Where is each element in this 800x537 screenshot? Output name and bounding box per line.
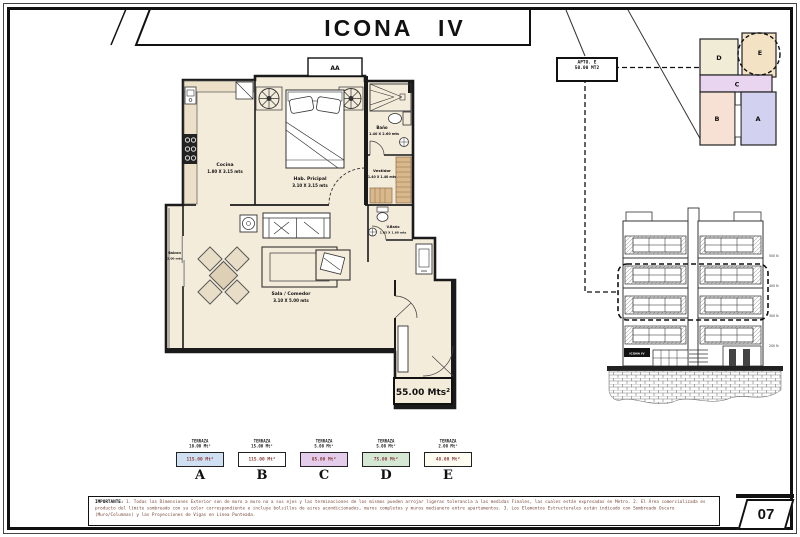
- legend-area-value-d: 75.00 Mt²: [363, 453, 409, 466]
- legend-terraza-value-c: 5.00 Mt²: [300, 444, 348, 447]
- ac-unit: AA: [308, 58, 362, 76]
- note-heading: IMPORTANTE:: [95, 500, 123, 505]
- level-labels: 500 N 400 N 300 N 200 N: [769, 254, 779, 348]
- unit-legend: TERRAZA 10.00 Mt² 115.00 Mt² A TERRAZA 1…: [176, 439, 472, 483]
- legend-item-d: TERRAZA 5.00 Mt² 75.00 Mt² D: [362, 439, 410, 483]
- legend-area-box-c: 85.00 Mt²: [300, 452, 348, 467]
- plan-sheet: ICONA IV APTO. E 50.00 MT2 D E C B A: [0, 0, 800, 537]
- keyplan-letter-b: B: [715, 115, 720, 123]
- important-note-box: IMPORTANTE: 1. Todas las Dimensiones Ext…: [88, 496, 720, 526]
- legend-letter-a: A: [176, 469, 224, 483]
- keyplan-unit-c: C: [700, 75, 772, 92]
- legend-area-value-c: 85.00 Mt²: [301, 453, 347, 466]
- room-label-balcon: Balcon: [168, 251, 181, 255]
- legend-terraza-title-e: TERRAZA: [424, 439, 472, 442]
- legend-area-value-b: 115.00 Mt²: [239, 453, 285, 466]
- keyplan-letter-d: D: [716, 54, 722, 62]
- armchair-icon: [316, 250, 350, 280]
- room-dims-cocina: 1.80 X 3.15 mts: [207, 169, 243, 174]
- note-body: 1. Todas las Dimensiones Exterior son de…: [95, 500, 706, 518]
- legend-letter-b: B: [238, 469, 286, 483]
- keyplan-letter-c: C: [735, 81, 740, 89]
- sink-icon-bath: [400, 138, 409, 147]
- legend-terraza-title-a: TERRAZA: [176, 439, 224, 442]
- legend-area-value-a: 115.00 Mt²: [177, 453, 223, 466]
- fridge-icon: [236, 82, 253, 99]
- legend-area-value-e: 48.00 Mt²: [425, 453, 471, 466]
- keyplan-letter-a: A: [755, 115, 760, 123]
- ground-slab: [607, 366, 783, 371]
- level-label-4: 500 N: [769, 254, 779, 258]
- legend-terraza-value-a: 10.00 Mt²: [176, 444, 224, 447]
- page-title: ICONA IV: [250, 13, 540, 43]
- room-label-hab: Hab. Pricipal: [293, 176, 326, 182]
- bed-icon: [286, 90, 344, 168]
- legend-letter-e: E: [424, 469, 472, 483]
- floorplan: AA Cocina: [158, 56, 463, 416]
- keyplan: D E C B A: [690, 25, 785, 150]
- room-label-cocina: Cocina: [216, 162, 233, 168]
- legend-letter-d: D: [362, 469, 410, 483]
- keyplan-stair-core: [735, 105, 741, 137]
- legend-terraza-value-d: 5.00 Mt²: [362, 444, 410, 447]
- sofa-icon: [263, 213, 330, 238]
- page-number-box: 07: [738, 499, 795, 530]
- room-dims-bano: 1.40 X 2.60 mts: [369, 132, 399, 136]
- level-label-3: 400 N: [769, 284, 779, 288]
- total-area-label: 55.00 Mts²: [396, 388, 450, 398]
- room-dims-hab: 3.10 X 3.15 mts: [292, 183, 328, 188]
- legend-item-e: TERRAZA 2.00 Mt² 48.00 Mt² E: [424, 439, 472, 483]
- kitchen-sink-icon: [185, 87, 196, 104]
- page-number-bar: [736, 494, 794, 498]
- room-dims-vestidor: 1.40 X 1.40 mts: [368, 175, 396, 179]
- building-elevation: ICONA IV 500 N 400 N 300 N 200 N: [593, 198, 793, 413]
- keyplan-unit-b: B: [700, 92, 735, 145]
- room-dims-sala: 3.10 X 5.00 mts: [273, 298, 309, 303]
- hall-console-icon: [398, 326, 408, 372]
- total-area-box: 55.00 Mts²: [394, 378, 452, 404]
- room-dims-balcon: 2.00 mts: [167, 257, 182, 261]
- legend-terraza-value-e: 2.00 Mt²: [424, 444, 472, 447]
- ground-bricks: [609, 371, 781, 404]
- legend-area-box-d: 75.00 Mt²: [362, 452, 410, 467]
- ac-label: AA: [330, 65, 340, 72]
- legend-letter-c: C: [300, 469, 348, 483]
- apto-area: 50.00 MT2: [558, 66, 616, 72]
- wedge-line-left: [566, 10, 585, 56]
- legend-terraza-value-b: 15.00 Mt²: [238, 444, 286, 447]
- elevation-sign: ICONA IV: [624, 348, 650, 357]
- room-label-vbano: V.Baño: [386, 225, 400, 229]
- page-number: 07: [744, 501, 788, 528]
- level-label-1: 200 N: [769, 344, 779, 348]
- room-label-bano: Baño: [376, 125, 388, 130]
- keyplan-letter-e: E: [758, 49, 762, 57]
- legend-area-box-e: 48.00 Mt²: [424, 452, 472, 467]
- closet-unit: [416, 244, 432, 274]
- legend-item-a: TERRAZA 10.00 Mt² 115.00 Mt² A: [176, 439, 224, 483]
- legend-terraza-title-b: TERRAZA: [238, 439, 286, 442]
- legend-item-c: TERRAZA 5.00 Mt² 85.00 Mt² C: [300, 439, 348, 483]
- legend-area-box-b: 115.00 Mt²: [238, 452, 286, 467]
- legend-area-box-a: 115.00 Mt²: [176, 452, 224, 467]
- room-dims-vbano: 1.05 X 1.60 mts: [380, 231, 407, 235]
- keyplan-unit-d: D: [700, 39, 738, 75]
- legend-terraza-title-c: TERRAZA: [300, 439, 348, 442]
- room-label-sala: Sala / Comedor: [271, 291, 311, 297]
- level-label-2: 300 N: [769, 314, 779, 318]
- fan-icon-left: [259, 89, 279, 109]
- legend-item-b: TERRAZA 15.00 Mt² 115.00 Mt² B: [238, 439, 286, 483]
- banner-slant-line: [111, 9, 126, 45]
- room-label-vestidor: Vestidor: [373, 168, 391, 173]
- keyplan-unit-e: E: [742, 33, 776, 77]
- elevation-sign-text: ICONA IV: [629, 352, 645, 356]
- keyplan-unit-a: A: [741, 92, 776, 145]
- legend-terraza-title-d: TERRAZA: [362, 439, 410, 442]
- side-table-icon: [240, 215, 257, 232]
- stove-icon: [184, 134, 198, 164]
- apto-label-box: APTO. E 50.00 MT2: [556, 57, 618, 82]
